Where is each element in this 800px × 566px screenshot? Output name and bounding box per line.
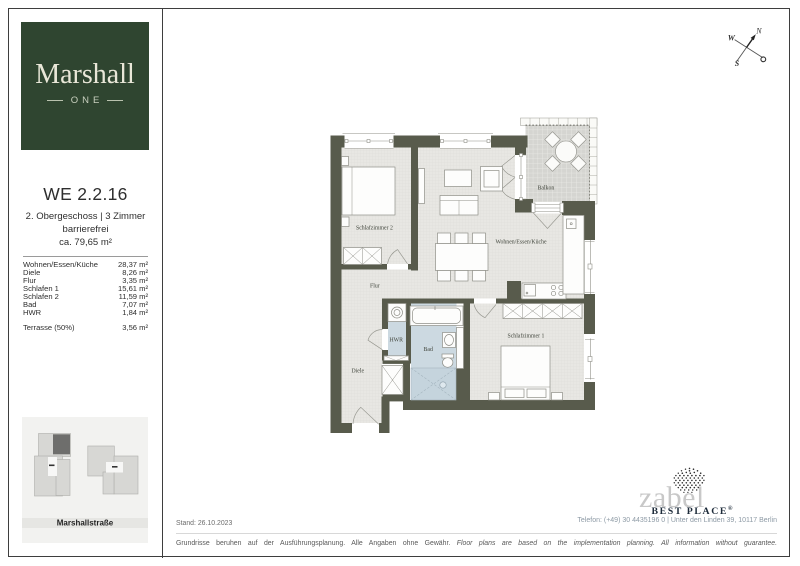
svg-text:Schlafzimmer 1: Schlafzimmer 1 xyxy=(508,333,545,340)
svg-text:Schlafzimmer 2: Schlafzimmer 2 xyxy=(356,225,393,232)
svg-text:Balkon: Balkon xyxy=(538,186,555,192)
svg-text:HWR: HWR xyxy=(390,338,404,344)
svg-text:Bad: Bad xyxy=(424,347,433,353)
svg-text:Flur: Flur xyxy=(370,284,380,290)
svg-text:N: N xyxy=(755,27,762,36)
svg-text:Wohnen/Essen/Küche: Wohnen/Essen/Küche xyxy=(496,240,547,246)
svg-text:Marshallstraße: Marshallstraße xyxy=(57,519,114,528)
svg-text:Diele: Diele xyxy=(352,369,365,375)
svg-text:W: W xyxy=(728,34,736,43)
svg-text:S: S xyxy=(735,59,740,68)
